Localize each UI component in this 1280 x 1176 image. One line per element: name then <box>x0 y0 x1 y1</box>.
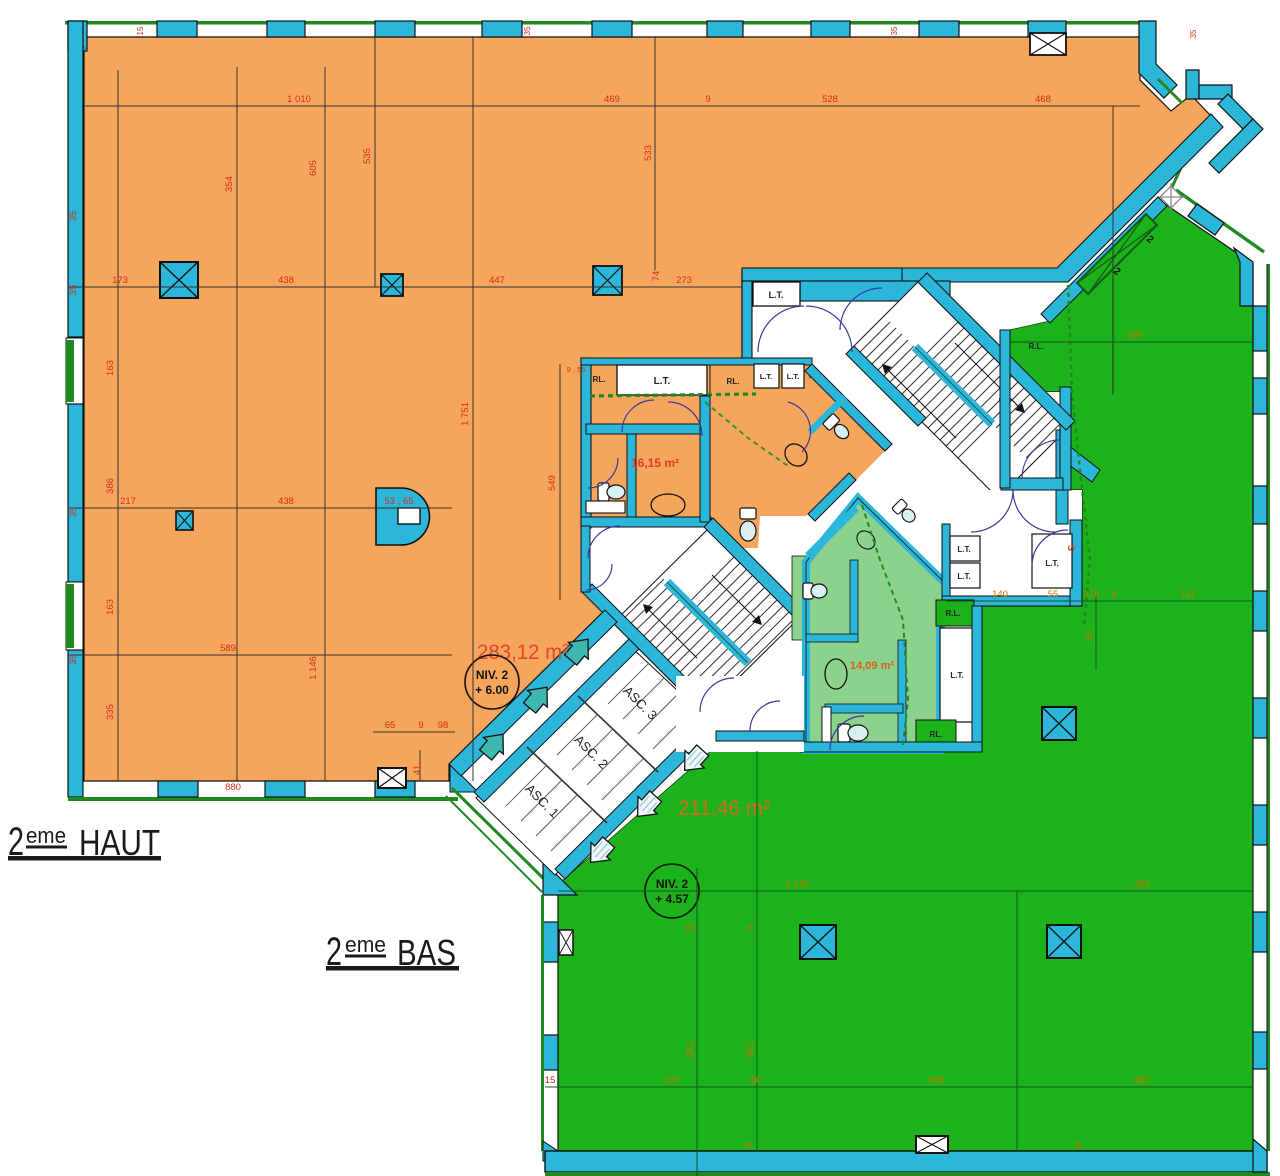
svg-text:438: 438 <box>278 275 294 286</box>
svg-text:370: 370 <box>664 1075 680 1086</box>
svg-text:25: 25 <box>1084 631 1095 642</box>
svg-text:163: 163 <box>105 599 116 615</box>
svg-text:16,15 m²: 16,15 m² <box>631 456 679 470</box>
svg-text:35: 35 <box>1074 1141 1083 1150</box>
svg-text:35: 35 <box>68 507 79 518</box>
svg-text:35: 35 <box>68 211 79 222</box>
svg-text:41: 41 <box>412 765 423 776</box>
svg-text:L.T.: L.T. <box>1045 559 1058 568</box>
svg-text:+ 6.00: + 6.00 <box>475 683 509 697</box>
svg-text:R.L.: R.L. <box>1028 342 1043 351</box>
svg-text:173: 173 <box>112 275 128 286</box>
svg-text:25: 25 <box>685 923 696 934</box>
svg-text:468: 468 <box>1035 94 1051 105</box>
svg-text:NIV. 2: NIV. 2 <box>476 668 509 682</box>
svg-text:eme: eme <box>26 823 66 848</box>
svg-text:15: 15 <box>545 1075 556 1086</box>
svg-text:R.L.: R.L. <box>945 609 960 618</box>
svg-text:L.T.: L.T. <box>760 372 773 381</box>
svg-text:111: 111 <box>1181 589 1195 600</box>
svg-text:211,46 m²: 211,46 m² <box>678 797 770 820</box>
svg-text:466: 466 <box>928 1075 944 1086</box>
svg-text:15: 15 <box>136 26 145 35</box>
svg-text:35: 35 <box>523 26 532 35</box>
svg-text:1 751: 1 751 <box>460 402 471 426</box>
svg-text:RL.: RL. <box>593 375 606 384</box>
svg-text:452: 452 <box>745 1042 756 1058</box>
svg-text:L.T.: L.T. <box>950 671 963 680</box>
svg-text:35: 35 <box>1189 29 1198 38</box>
svg-text:273: 273 <box>676 275 692 286</box>
svg-text:35: 35 <box>890 26 899 35</box>
svg-text:53 , 65: 53 , 65 <box>384 496 413 507</box>
svg-text:9: 9 <box>1111 589 1116 600</box>
svg-text:110: 110 <box>1084 589 1099 600</box>
svg-text:335: 335 <box>105 704 116 720</box>
svg-text:14,09 m²: 14,09 m² <box>850 660 894 672</box>
svg-text:482: 482 <box>1134 879 1150 890</box>
svg-text:590: 590 <box>1127 330 1143 341</box>
svg-text:549: 549 <box>547 475 558 491</box>
svg-text:217: 217 <box>120 496 136 507</box>
svg-text:354: 354 <box>224 176 235 192</box>
svg-text:140: 140 <box>992 589 1008 600</box>
svg-text:452: 452 <box>685 1042 696 1058</box>
svg-text:L.T.: L.T. <box>787 372 800 381</box>
svg-text:1 145: 1 145 <box>785 879 809 890</box>
svg-text:98: 98 <box>438 720 449 731</box>
svg-text:S: S <box>1066 545 1076 551</box>
svg-text:535: 535 <box>362 148 373 164</box>
svg-text:35: 35 <box>744 1141 753 1150</box>
svg-text:L.T.: L.T. <box>957 545 970 554</box>
svg-text:605: 605 <box>308 160 319 176</box>
svg-text:RL.: RL. <box>930 730 943 739</box>
svg-text:65: 65 <box>385 720 396 731</box>
svg-text:528: 528 <box>822 94 838 105</box>
svg-text:283,12 m²: 283,12 m² <box>477 641 569 664</box>
svg-text:NIV. 2: NIV. 2 <box>656 877 689 891</box>
svg-text:9: 9 <box>745 925 756 930</box>
svg-text:L.T.: L.T. <box>654 376 671 387</box>
svg-text:74: 74 <box>651 271 662 282</box>
svg-text:589: 589 <box>220 643 236 654</box>
svg-text:447: 447 <box>489 275 505 286</box>
svg-text:+ 4.57: + 4.57 <box>655 892 689 906</box>
svg-text:533: 533 <box>643 145 654 161</box>
svg-text:35: 35 <box>68 654 79 665</box>
svg-text:50: 50 <box>751 1075 762 1086</box>
svg-text:9: 9 <box>418 720 423 731</box>
svg-text:386: 386 <box>105 478 116 494</box>
svg-text:RL.: RL. <box>727 377 740 386</box>
svg-text:9: 9 <box>705 94 710 105</box>
svg-text:438: 438 <box>278 496 294 507</box>
svg-text:482: 482 <box>1134 1075 1150 1086</box>
svg-text:eme: eme <box>345 932 386 957</box>
svg-text:163: 163 <box>105 360 116 376</box>
svg-text:1 010: 1 010 <box>287 94 311 105</box>
svg-text:880: 880 <box>225 782 241 793</box>
svg-text:55: 55 <box>1048 589 1059 600</box>
svg-text:1 146: 1 146 <box>308 656 319 680</box>
svg-text:35: 35 <box>68 285 79 296</box>
svg-text:9 , 55: 9 , 55 <box>567 365 586 374</box>
svg-text:L.T.: L.T. <box>957 572 970 581</box>
svg-text:469: 469 <box>604 94 620 105</box>
svg-text:L.T.: L.T. <box>769 290 784 300</box>
